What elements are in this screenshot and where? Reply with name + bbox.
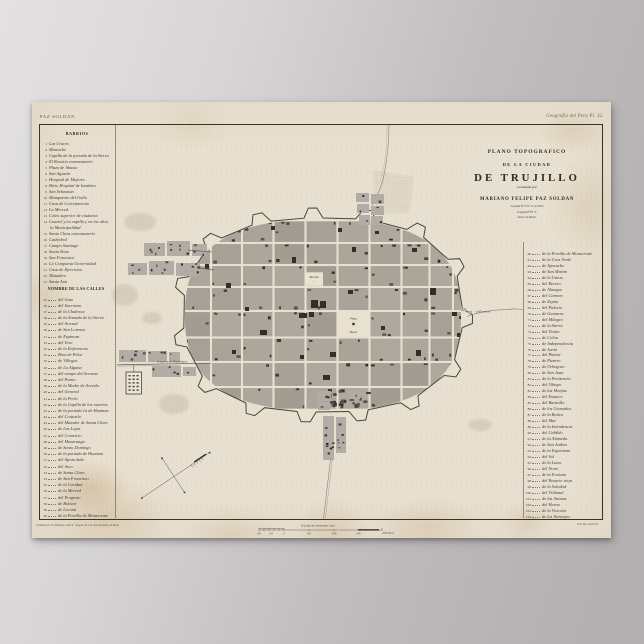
svg-text:300: 300: [257, 532, 262, 535]
svg-text:150: 150: [269, 532, 274, 535]
svg-text:2000 Varas: 2000 Varas: [382, 532, 394, 535]
svg-text:0: 0: [283, 532, 285, 535]
svg-text:500: 500: [307, 532, 312, 535]
svg-text:1500: 1500: [355, 532, 361, 535]
svg-text:Escala de varas por 1cm: Escala de varas por 1cm: [300, 523, 335, 527]
svg-text:1000: 1000: [331, 532, 337, 535]
